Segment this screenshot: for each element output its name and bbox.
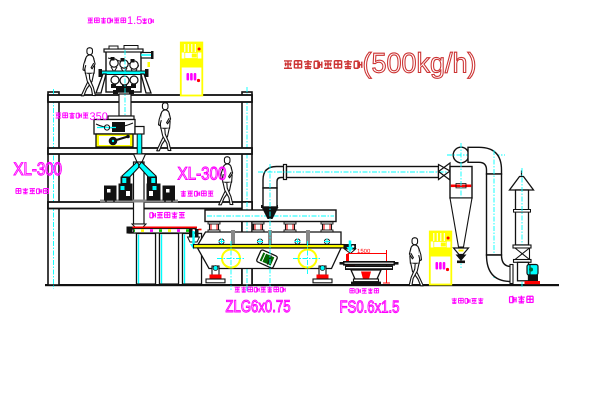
svg-text:FS0.6x1.5: FS0.6x1.5: [340, 298, 400, 317]
svg-text:1500: 1500: [357, 248, 371, 255]
svg-text:1.5: 1.5: [127, 15, 142, 27]
svg-text:ZLG6x0.75: ZLG6x0.75: [226, 297, 291, 316]
svg-text:XL-300: XL-300: [14, 159, 63, 179]
svg-text:(500kg/h): (500kg/h): [363, 48, 477, 79]
svg-text:XL-300: XL-300: [178, 164, 227, 184]
svg-text:350: 350: [90, 111, 108, 123]
